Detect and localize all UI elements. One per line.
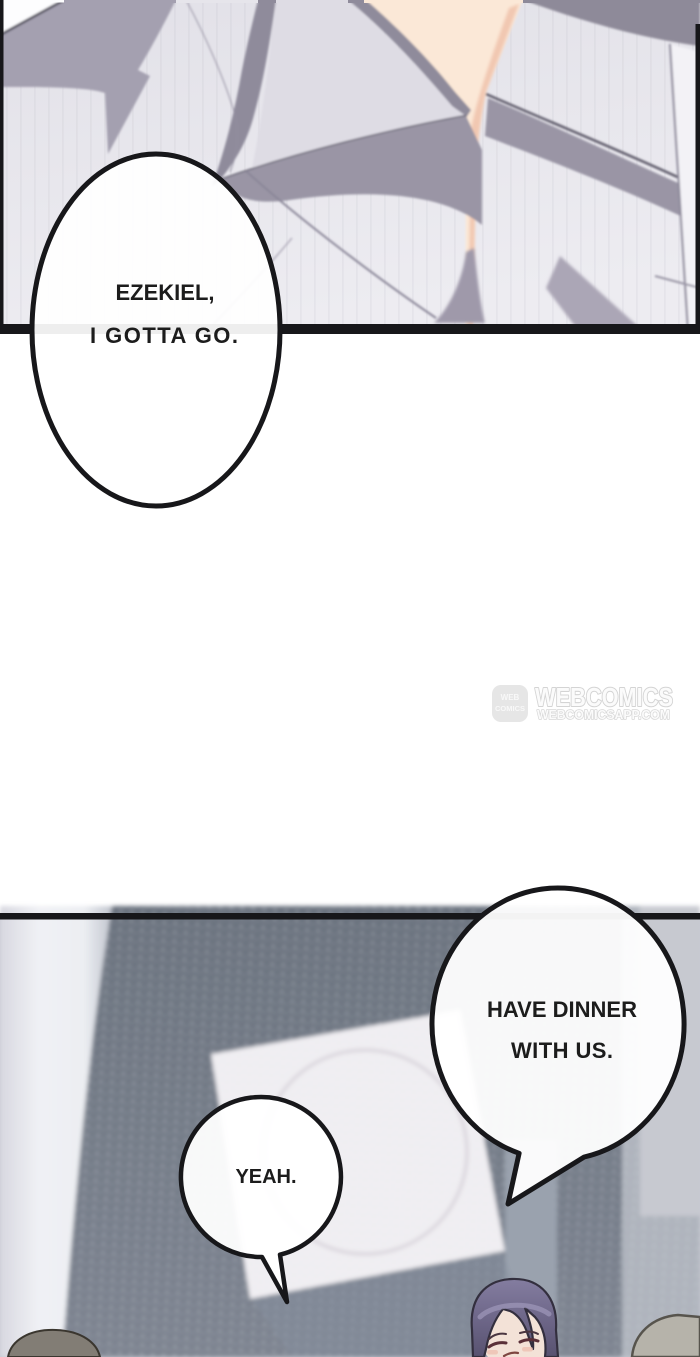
svg-text:EZEKIEL,: EZEKIEL, [115,280,214,305]
svg-text:I GOTTA GO.: I GOTTA GO. [90,323,238,348]
svg-text:YEAH.: YEAH. [235,1166,296,1188]
svg-text:WEB: WEB [501,693,520,702]
svg-text:WEBCOMICSAPP.COM: WEBCOMICSAPP.COM [537,707,670,722]
svg-text:HAVE DINNER: HAVE DINNER [487,997,637,1022]
svg-text:WITH US.: WITH US. [511,1038,613,1063]
svg-text:COMICS: COMICS [495,704,525,713]
